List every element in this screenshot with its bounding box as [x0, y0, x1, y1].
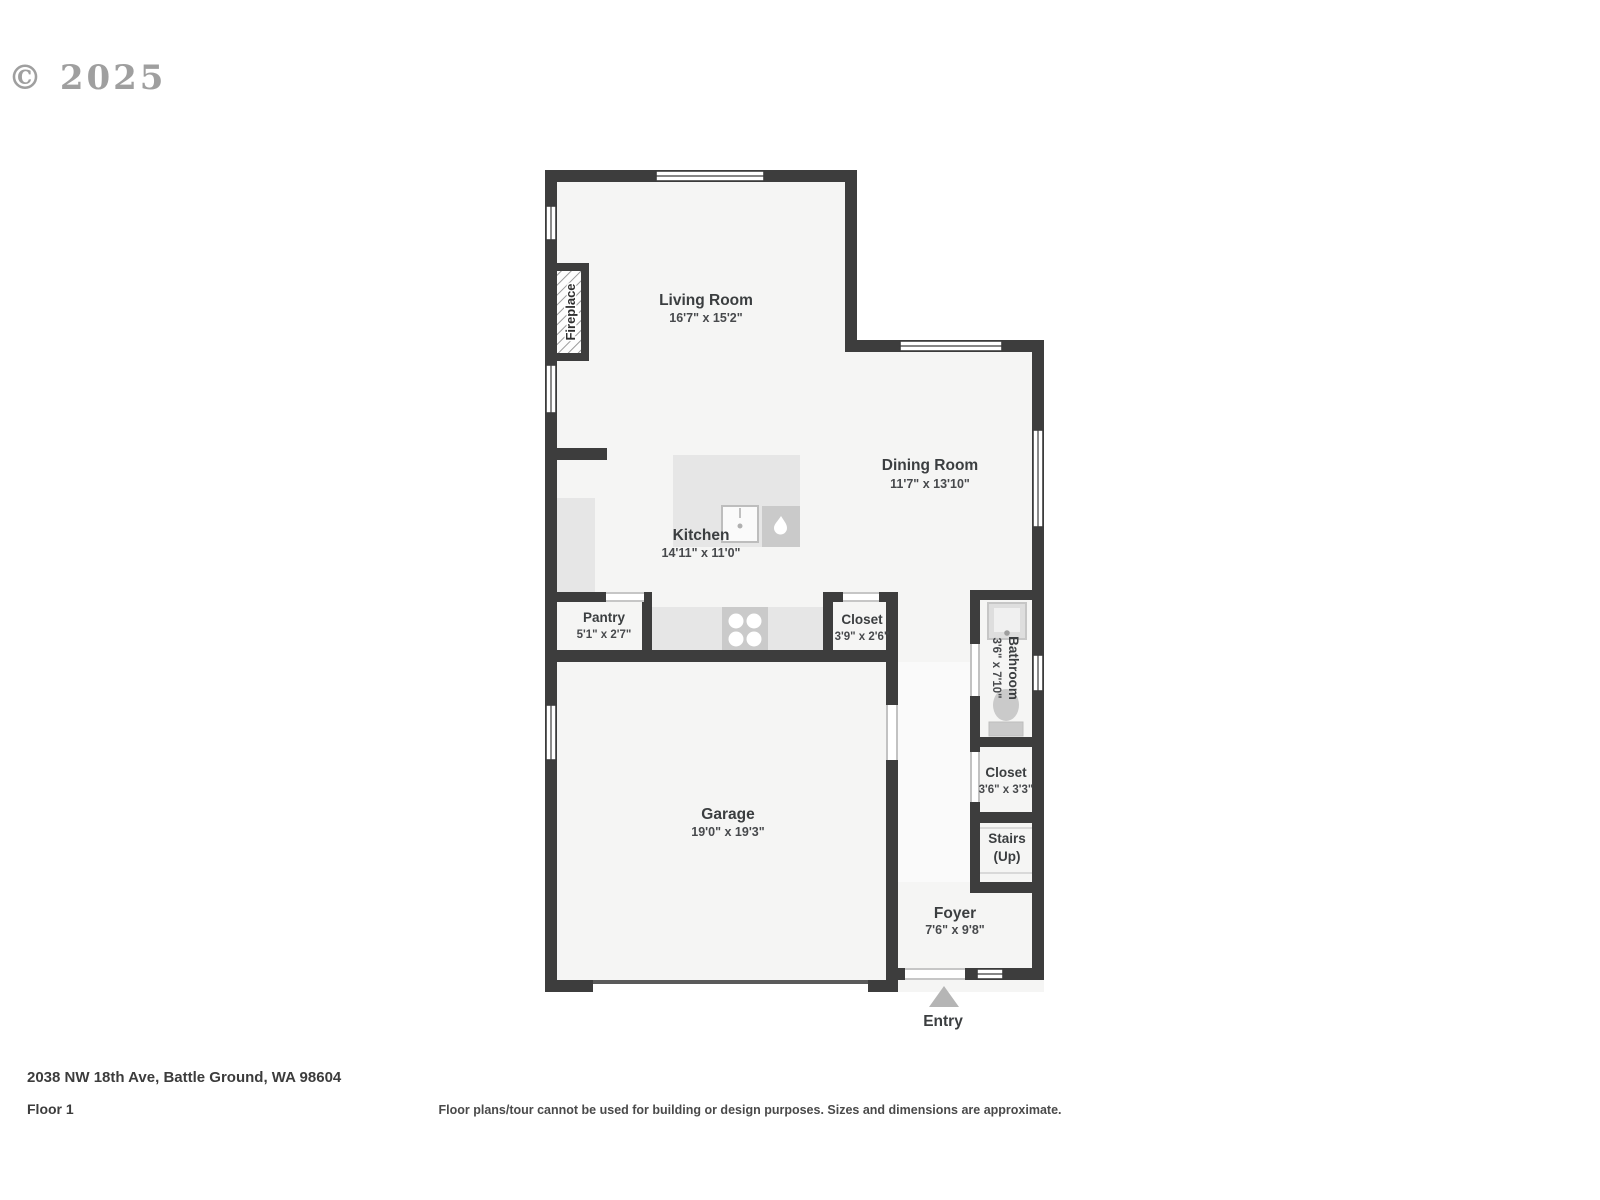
window-icon	[977, 969, 1003, 979]
kitchen-dims: 14'11" x 11'0"	[662, 546, 741, 560]
door-opening	[970, 644, 980, 696]
pantry-dims: 5'1" x 2'7"	[577, 629, 632, 641]
dining-room-dims: 11'7" x 13'10"	[890, 477, 970, 491]
window-icon	[546, 206, 556, 240]
bathroom-label: Bathroom	[1006, 636, 1021, 700]
door-opening	[905, 968, 965, 980]
door-opening	[886, 705, 898, 760]
garage-label: Garage	[701, 806, 755, 823]
garage-label-group: Garage 19'0" x 19'3"	[691, 806, 764, 839]
foyer-label-group: Foyer 7'6" x 9'8"	[925, 905, 985, 937]
garage-door-opening	[593, 980, 868, 992]
foyer-dims: 7'6" x 9'8"	[925, 923, 985, 937]
closet-dims: 3'9" x 2'6"	[835, 631, 890, 643]
hallway-floor	[898, 662, 970, 882]
disclaimer-text: Floor plans/tour cannot be used for buil…	[438, 1103, 1061, 1117]
closet-label: Closet	[841, 612, 883, 627]
foyer-label: Foyer	[934, 905, 976, 922]
garage-dims: 19'0" x 19'3"	[691, 825, 764, 839]
door-opening	[606, 592, 644, 602]
pantry-label: Pantry	[583, 610, 626, 625]
entry-marker: Entry	[923, 986, 963, 1030]
closet2-label: Closet	[985, 765, 1027, 780]
kitchen-label: Kitchen	[673, 527, 730, 544]
window-icon	[546, 365, 556, 413]
stove-icon	[722, 607, 768, 650]
floor-label: Floor 1	[27, 1101, 74, 1117]
floor-plan-page: © 2025	[0, 0, 1600, 1200]
fireplace: Fireplace	[549, 263, 589, 361]
property-address: 2038 NW 18th Ave, Battle Ground, WA 9860…	[27, 1069, 341, 1086]
window-icon	[900, 341, 1002, 351]
stairs-label: Stairs	[988, 831, 1026, 846]
window-icon	[656, 171, 764, 181]
dining-room-label: Dining Room	[882, 457, 978, 474]
living-room-label-group: Living Room 16'7" x 15'2"	[659, 292, 753, 325]
bathroom-dims: 3'6" x 7'10"	[990, 637, 1002, 698]
window-icon	[1033, 430, 1043, 527]
window-icon	[1033, 655, 1043, 691]
entry-label: Entry	[923, 1013, 963, 1030]
kitchen-counter-left	[557, 498, 595, 592]
living-room-label: Living Room	[659, 292, 753, 309]
living-room-dims: 16'7" x 15'2"	[669, 311, 742, 325]
door-opening	[843, 592, 879, 602]
closet2-dims: 3'6" x 3'3"	[979, 784, 1034, 796]
floor-plan-drawing: Fireplace Living Room 16'7" x 15'2" Dini…	[0, 0, 1600, 1200]
stairs-up-label: (Up)	[994, 849, 1021, 864]
fireplace-label: Fireplace	[563, 283, 578, 340]
kitchen-label-group: Kitchen 14'11" x 11'0"	[662, 527, 741, 560]
window-icon	[546, 705, 556, 760]
